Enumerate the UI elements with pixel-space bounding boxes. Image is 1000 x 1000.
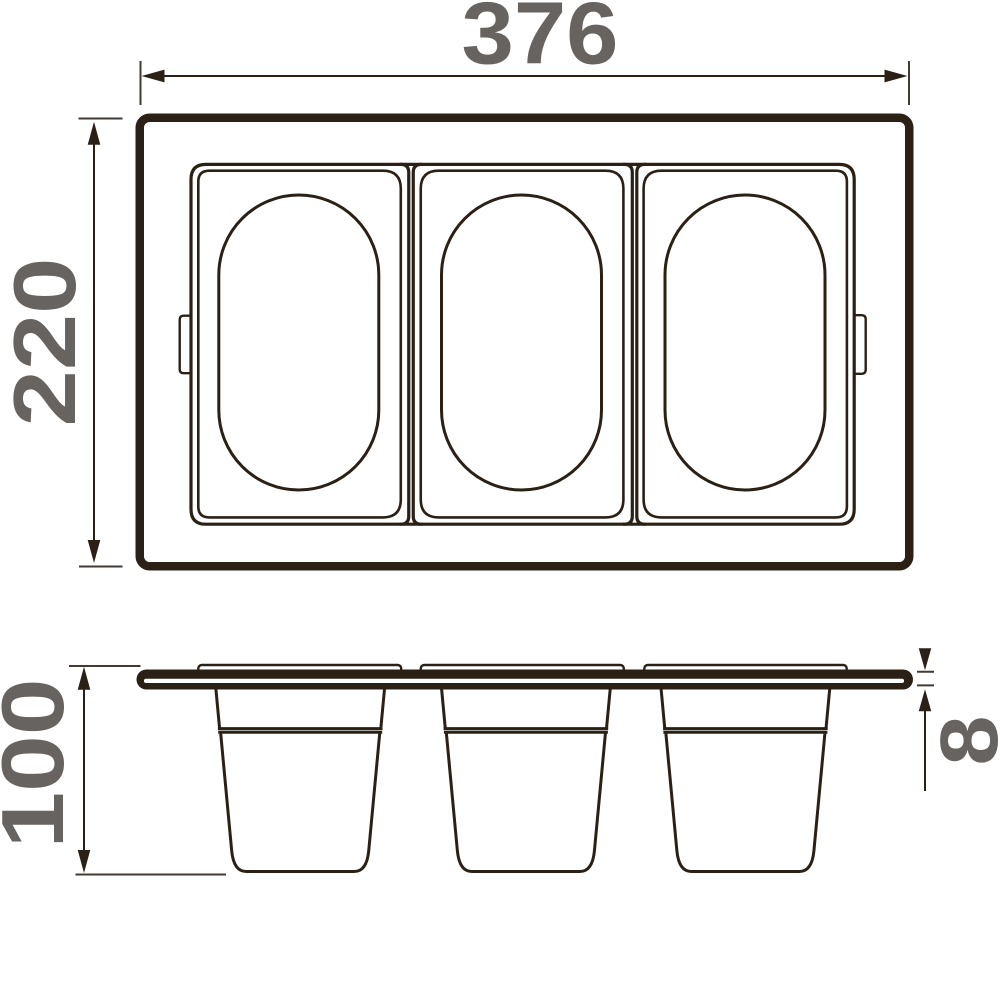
svg-text:100: 100 <box>0 679 82 849</box>
svg-text:376: 376 <box>462 0 619 83</box>
svg-text:220: 220 <box>0 258 94 427</box>
svg-text:8: 8 <box>924 716 1000 766</box>
